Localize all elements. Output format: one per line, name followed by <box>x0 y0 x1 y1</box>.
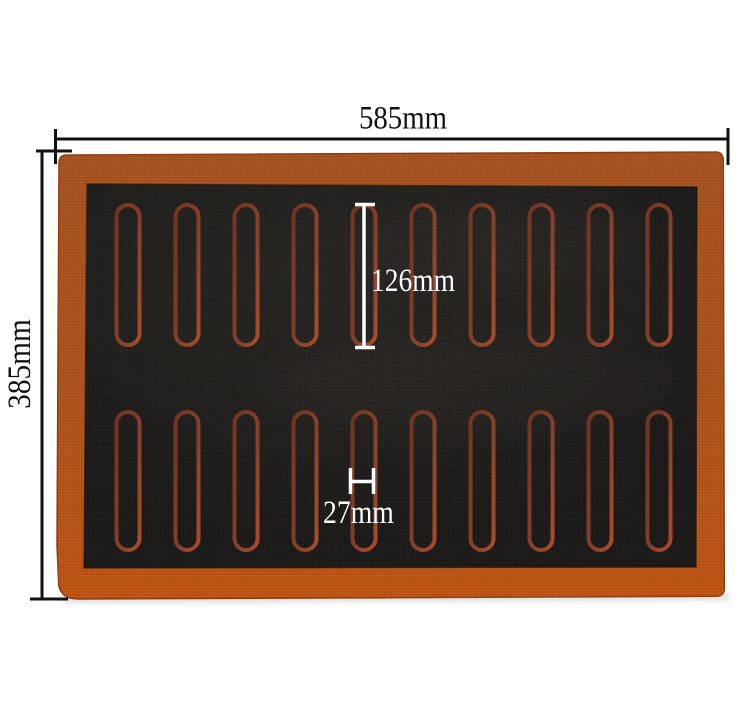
svg-text:126mm: 126mm <box>371 262 455 299</box>
svg-text:585mm: 585mm <box>359 99 447 136</box>
svg-text:27mm: 27mm <box>323 494 394 531</box>
svg-text:385mm: 385mm <box>0 319 37 409</box>
